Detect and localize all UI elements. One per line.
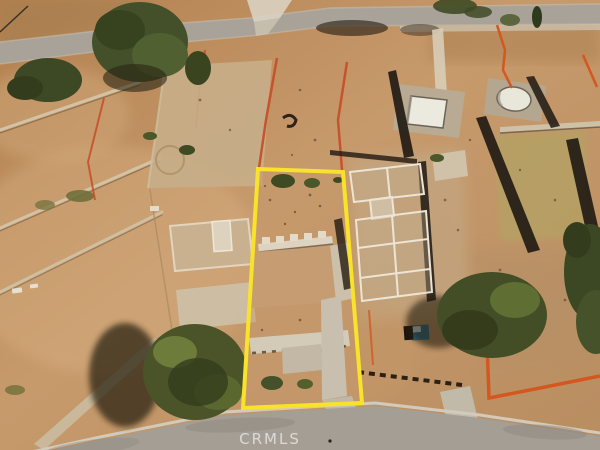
dirt-pad [250,246,336,308]
road-speck [328,439,331,442]
aerial-photo: CRMLS [0,0,600,450]
foundation-outlines [350,164,432,301]
road-shadow [316,20,388,36]
tree-bottom-left [89,323,247,427]
aerial-photo-scene [0,0,600,450]
